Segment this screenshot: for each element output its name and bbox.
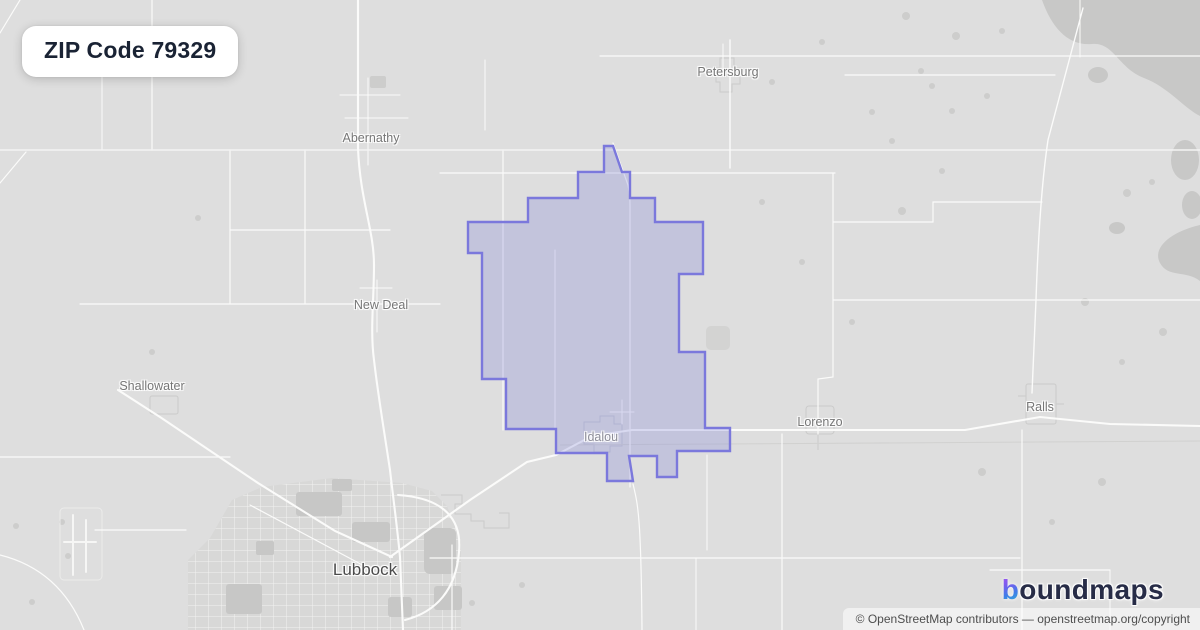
og-map-image: { "badge": { "title": "ZIP Code 79329" }…: [0, 0, 1200, 630]
boundmaps-logo: boundmaps: [1002, 574, 1164, 606]
zip-code-badge-label: ZIP Code 79329: [44, 37, 216, 63]
boundmaps-logo-icon: b: [1002, 574, 1020, 605]
osm-attribution-text[interactable]: © OpenStreetMap contributors — openstree…: [856, 612, 1190, 626]
map-canvas: [0, 0, 1200, 630]
basemap-svg: [0, 0, 1200, 630]
osm-attribution[interactable]: © OpenStreetMap contributors — openstree…: [843, 608, 1200, 630]
boundmaps-logo-text: oundmaps: [1019, 574, 1164, 605]
zip-code-badge: ZIP Code 79329: [22, 26, 238, 77]
